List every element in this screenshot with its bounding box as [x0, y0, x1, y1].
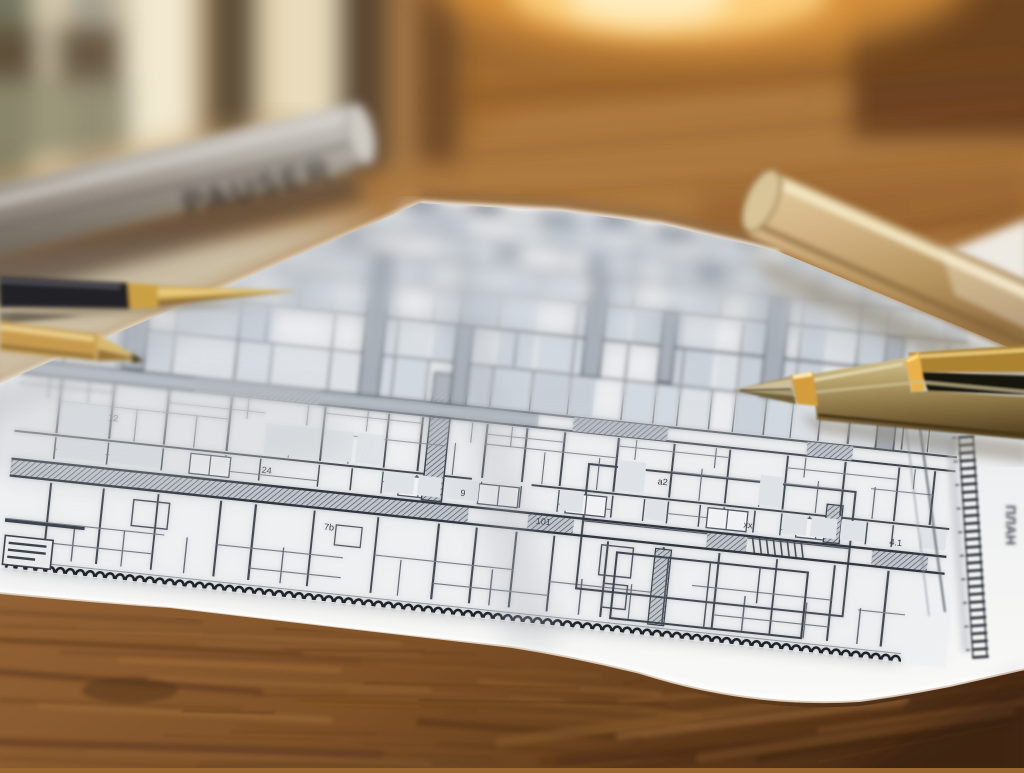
- svg-text:7b: 7b: [324, 522, 335, 533]
- svg-text:101: 101: [535, 516, 551, 528]
- svg-text:4.1: 4.1: [889, 537, 902, 548]
- svg-text:9: 9: [460, 488, 466, 498]
- svg-text:ПЛAН: ПЛAН: [1003, 505, 1019, 545]
- svg-text:xx: xx: [743, 520, 753, 531]
- svg-text:a2: a2: [657, 476, 668, 487]
